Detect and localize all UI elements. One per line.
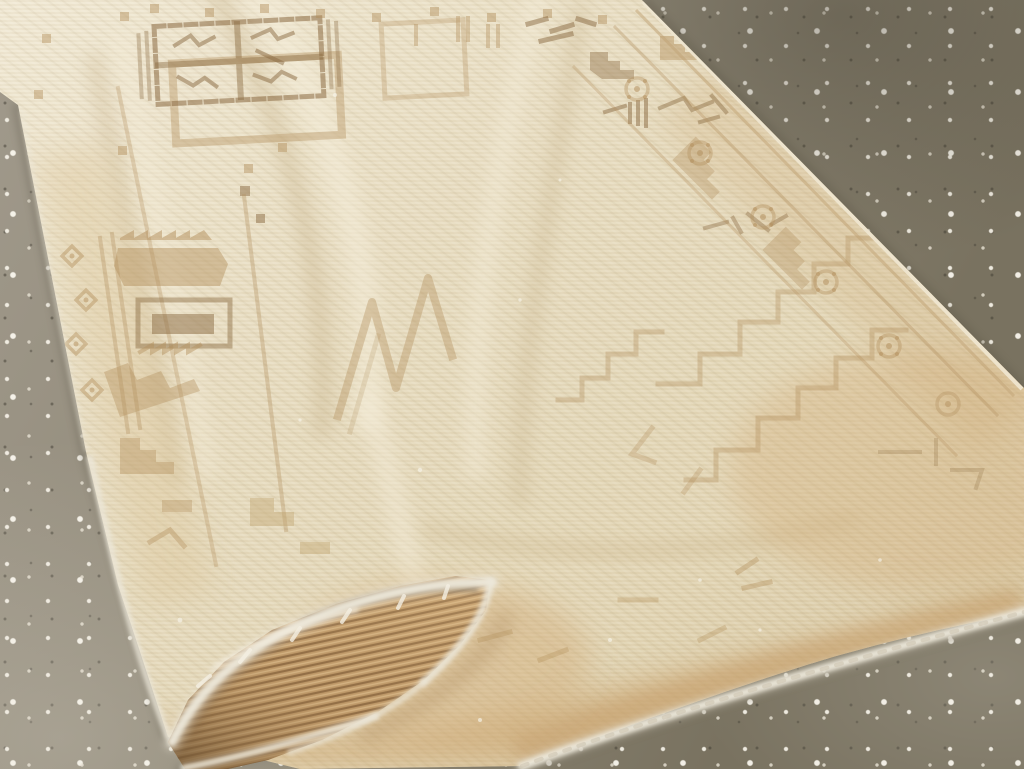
photo-canvas: Angled overhead photograph of a worn vin…	[0, 0, 1024, 769]
rug-illustration	[0, 0, 1024, 769]
